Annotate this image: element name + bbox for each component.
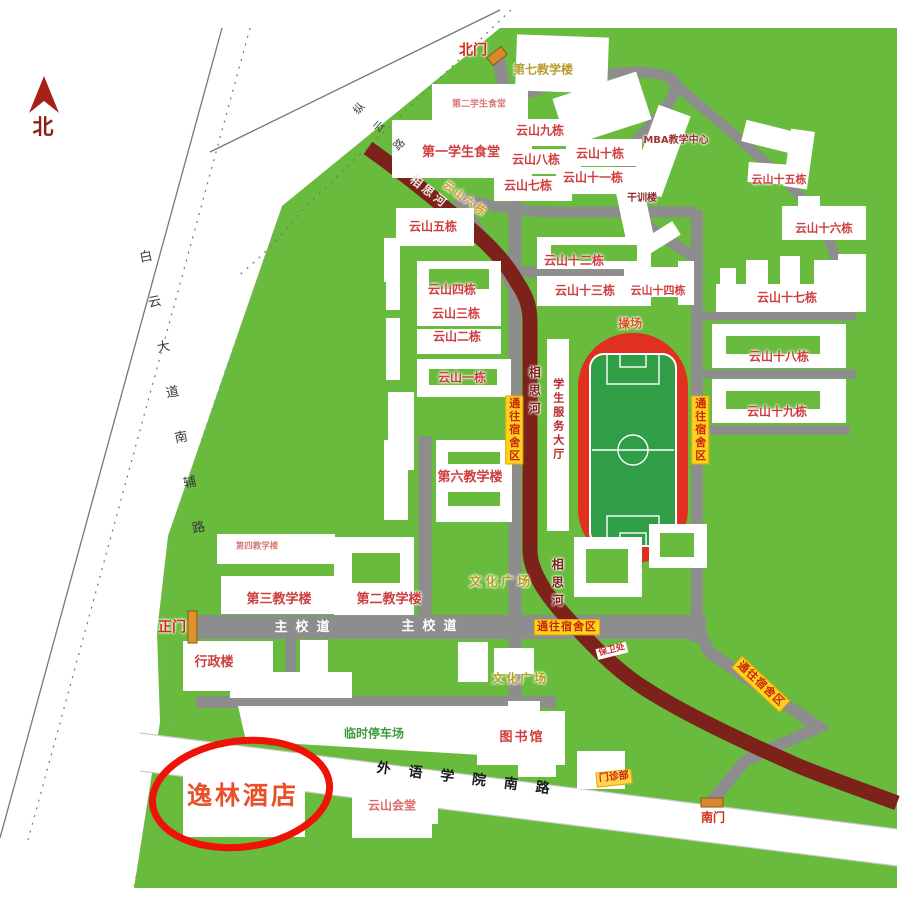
label-yunshan13: 云山十三栋	[555, 285, 615, 298]
building-sliver-2	[386, 318, 400, 380]
label-yunshan3: 云山三栋	[432, 308, 480, 321]
building-yunshan16-notch	[798, 196, 820, 208]
label-ganxun: 干训楼	[627, 194, 657, 205]
label-yunshan11: 云山十一栋	[563, 172, 623, 185]
label-yunshan10: 云山十栋	[576, 148, 624, 161]
label-north-gate: 北门	[459, 44, 487, 59]
label-main-gate: 正门	[158, 621, 186, 636]
label-teach2: 第二教学楼	[356, 593, 421, 607]
label-library: 图书馆	[499, 731, 544, 745]
label-yunshan5: 云山五栋	[409, 221, 457, 234]
label-hall: 云山会堂	[368, 800, 416, 813]
sign-to-dorm-east: 通往宿舍区	[691, 396, 709, 465]
label-yunshan2: 云山二栋	[433, 331, 481, 344]
label-south-gate: 南门	[701, 812, 725, 825]
north-arrow-icon	[29, 76, 59, 113]
building-block-a2	[494, 648, 534, 674]
label-culture-plaza-2: 文化广场	[492, 673, 548, 686]
label-yunshan4: 云山四栋	[428, 284, 476, 297]
sign-to-dorm-center: 通往宿舍区	[534, 619, 600, 635]
label-teach3: 第三教学楼	[246, 593, 311, 607]
building-yunshan17-t3	[780, 256, 800, 286]
building-admin-b	[230, 672, 352, 698]
campus-map: 北 北门 正门 南门 白云大道南辅路 纵云路 外语学院南路 主校道 主校道 通往…	[0, 0, 905, 906]
label-yunshan15: 云山十五栋	[752, 174, 807, 186]
building-block-b1	[300, 640, 328, 674]
label-playground: 操场	[618, 318, 642, 331]
building-yunshan17-t4	[814, 260, 838, 286]
label-parking: 临时停车场	[344, 728, 404, 741]
main-gate-marker	[188, 611, 197, 643]
label-yunshan8: 云山八栋	[512, 154, 560, 167]
label-mba: MBA教学中心	[643, 136, 708, 147]
label-yunshan9: 云山九栋	[516, 125, 564, 138]
label-yunshan17: 云山十七栋	[757, 292, 817, 305]
building-library-top	[508, 701, 540, 715]
label-yunshan16: 云山十六栋	[795, 222, 853, 234]
label-main-road-1: 主校道	[274, 621, 337, 635]
building-hall-ext	[424, 790, 438, 824]
building-yunshan14-ext	[678, 261, 694, 305]
label-culture-plaza-1: 文化广场	[469, 576, 533, 590]
label-teach7: 第七教学楼	[513, 64, 573, 77]
label-canteen1: 第一学生食堂	[422, 146, 500, 160]
label-admin: 行政楼	[194, 656, 233, 670]
building-yunshan17-t2	[746, 260, 768, 286]
label-yunshan19: 云山十九栋	[747, 406, 807, 419]
building-block-b2	[304, 678, 324, 694]
sign-to-dorm-west: 通往宿舍区	[505, 396, 523, 465]
label-river-vertical-1: 相思河	[528, 366, 541, 420]
compass-label: 北	[33, 116, 54, 138]
building-yunshan17-r	[838, 254, 866, 312]
building-library-bottom	[518, 763, 556, 777]
label-teach6: 第六教学楼	[437, 471, 502, 485]
label-yunshan18: 云山十八栋	[749, 351, 809, 364]
label-student-hall: 学生服务大厅	[552, 378, 564, 462]
label-river-vertical-2: 相思河	[551, 558, 564, 612]
label-hotel: 逸林酒店	[187, 783, 299, 809]
label-yunshan1: 云山一栋	[438, 372, 486, 385]
label-teach4: 第四教学楼	[236, 543, 279, 552]
building-block-a1	[458, 642, 488, 682]
building-sliver-1	[386, 256, 400, 310]
south-gate-marker	[701, 798, 723, 807]
label-canteen2: 第二学生食堂	[452, 100, 506, 109]
label-yunshan7: 云山七栋	[504, 180, 552, 193]
building-teach6-annex	[384, 440, 408, 520]
building-yunshan17-t1	[720, 268, 736, 286]
label-main-road-2: 主校道	[401, 620, 464, 634]
label-yunshan12: 云山十二栋	[544, 255, 604, 268]
label-yunshan14: 云山十四栋	[631, 285, 686, 297]
